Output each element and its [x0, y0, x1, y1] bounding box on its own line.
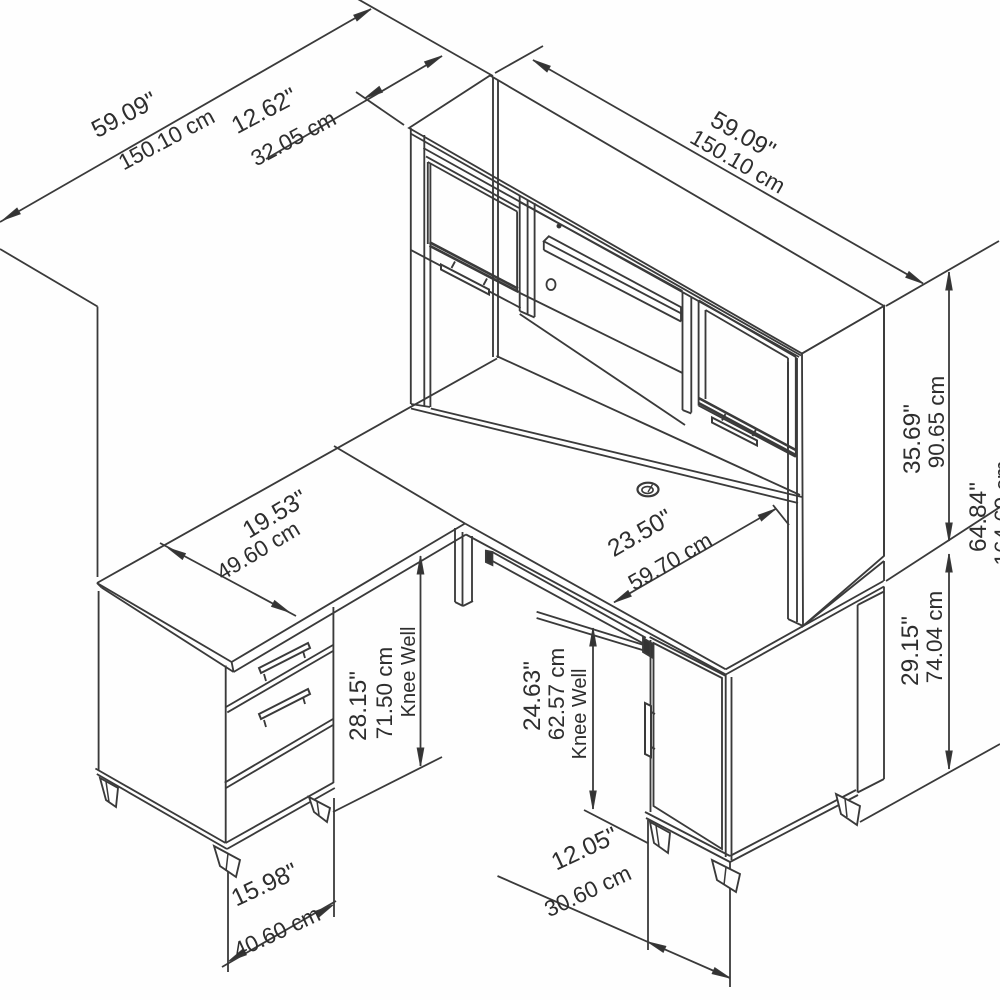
svg-text:Knee Well: Knee Well [398, 627, 420, 718]
svg-text:Knee Well: Knee Well [569, 669, 591, 760]
svg-text:74.04 cm: 74.04 cm [922, 591, 947, 684]
svg-text:29.15": 29.15" [897, 616, 924, 686]
svg-text:28.15": 28.15" [345, 671, 372, 741]
svg-text:90.65 cm: 90.65 cm [924, 376, 949, 469]
svg-text:62.57 cm: 62.57 cm [544, 648, 569, 741]
svg-text:164.69 cm: 164.69 cm [990, 460, 1000, 565]
svg-text:71.50 cm: 71.50 cm [372, 647, 397, 740]
svg-text:35.69": 35.69" [899, 404, 926, 474]
svg-text:24.63": 24.63" [519, 661, 546, 731]
svg-text:64.84": 64.84" [965, 482, 992, 552]
